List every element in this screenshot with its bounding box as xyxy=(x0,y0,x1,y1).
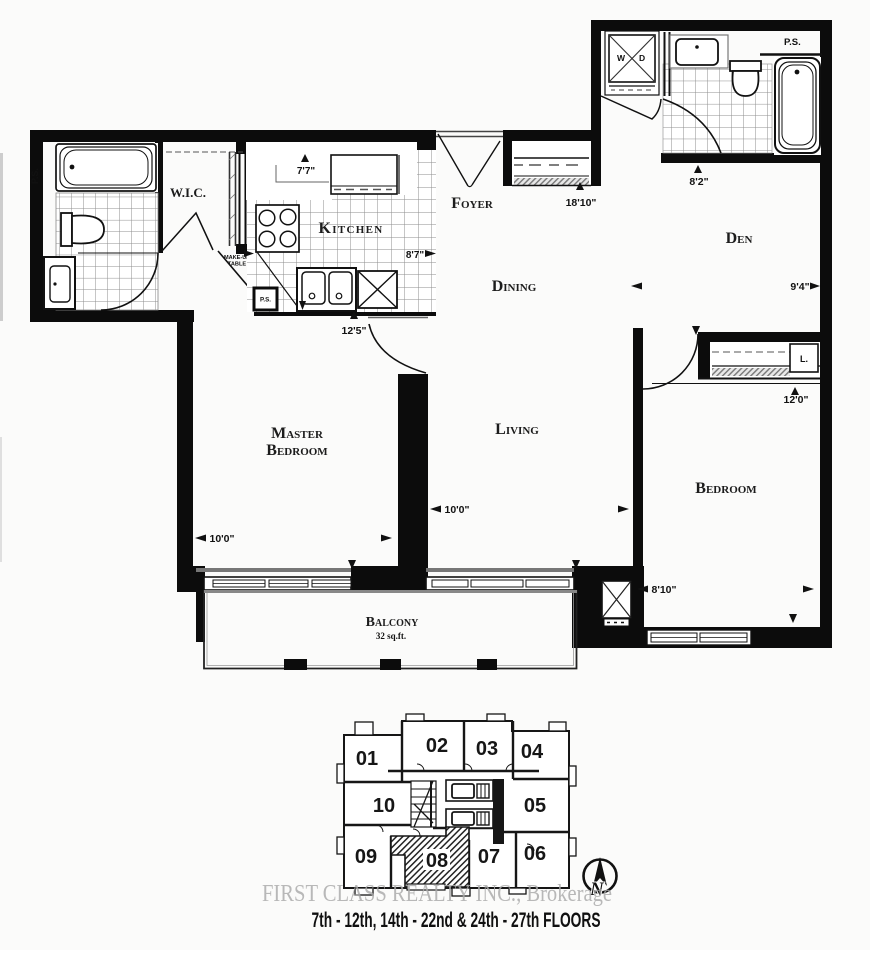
svg-text:10'0": 10'0" xyxy=(210,533,235,545)
svg-text:P.S.: P.S. xyxy=(784,37,801,48)
svg-text:12'0": 12'0" xyxy=(784,394,809,406)
svg-text:05: 05 xyxy=(524,795,546,817)
svg-text:8'2": 8'2" xyxy=(689,176,708,188)
svg-text:Master: Master xyxy=(271,425,324,442)
svg-text:Den: Den xyxy=(726,230,753,247)
svg-text:9'4": 9'4" xyxy=(790,281,809,293)
svg-text:Kitchen: Kitchen xyxy=(319,220,384,237)
svg-text:10: 10 xyxy=(373,795,395,817)
svg-text:Balcony: Balcony xyxy=(366,615,419,630)
svg-text:P.S.: P.S. xyxy=(260,297,271,304)
svg-text:10'0": 10'0" xyxy=(445,504,470,516)
svg-text:8'10": 8'10" xyxy=(652,584,677,596)
svg-text:FIRST CLASS REALTY INC., Broke: FIRST CLASS REALTY INC., Brokerage xyxy=(262,881,612,907)
svg-text:W: W xyxy=(617,53,626,63)
svg-text:8'7": 8'7" xyxy=(406,250,425,261)
svg-text:Dining: Dining xyxy=(492,278,537,295)
svg-text:08: 08 xyxy=(426,850,448,872)
svg-text:Bedroom: Bedroom xyxy=(695,480,757,497)
svg-text:01: 01 xyxy=(356,748,378,770)
svg-text:Living: Living xyxy=(495,421,539,438)
svg-text:P.S.: P.S. xyxy=(30,168,40,184)
svg-text:09: 09 xyxy=(355,846,377,868)
svg-text:W.I.C.: W.I.C. xyxy=(170,185,206,200)
svg-text:7'7": 7'7" xyxy=(297,166,316,177)
svg-text:32 sq.ft.: 32 sq.ft. xyxy=(376,631,406,641)
svg-text:07: 07 xyxy=(478,846,500,868)
svg-text:D: D xyxy=(639,53,645,63)
svg-text:06: 06 xyxy=(524,843,546,865)
svg-text:03: 03 xyxy=(476,738,498,760)
svg-text:L.: L. xyxy=(800,354,808,364)
svg-text:Foyer: Foyer xyxy=(451,195,494,212)
svg-text:02: 02 xyxy=(426,735,448,757)
svg-text:04: 04 xyxy=(521,741,544,763)
svg-text:12'5": 12'5" xyxy=(342,325,367,337)
svg-text:7th - 12th, 14th - 22nd & 24th: 7th - 12th, 14th - 22nd & 24th - 27th FL… xyxy=(312,909,601,932)
svg-text:Bedroom: Bedroom xyxy=(266,442,328,459)
svg-text:18'10": 18'10" xyxy=(566,197,597,209)
